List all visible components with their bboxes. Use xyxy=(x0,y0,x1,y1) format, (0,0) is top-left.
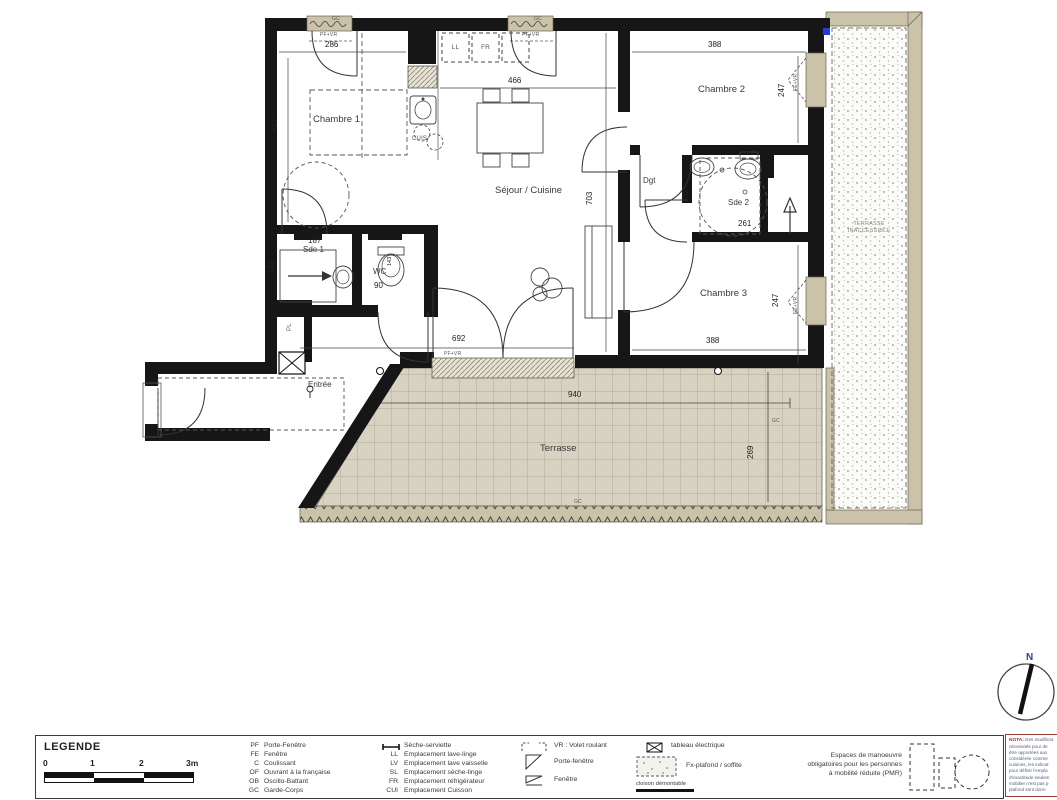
label-placard: PL xyxy=(287,323,293,331)
dim-chambre2-w: 388 xyxy=(708,40,721,49)
emp-lv-label: Emplacement lave vaisselle xyxy=(404,760,488,767)
abbr-ob-label: Oscillo-Battant xyxy=(264,778,308,785)
dim-sde1-h: 161 xyxy=(267,261,276,274)
pmr-spaces-icon xyxy=(908,742,993,794)
emp-ll: LL xyxy=(378,751,398,758)
emp-cui-label: Emplacement Cuisson xyxy=(404,787,472,794)
dim-chambre1-h: 414 xyxy=(270,119,279,132)
tag-fevr-1: FE+VR xyxy=(793,74,799,91)
dim-wc-h: 143 xyxy=(387,257,393,266)
symbol-fx-label: Fx-plafond / soffite xyxy=(686,762,742,769)
dim-terrasse-h: 269 xyxy=(746,446,755,459)
label-lave-linge: LL xyxy=(442,44,469,51)
label-terrasse-inaccessible-2: INACCESSIBLE xyxy=(832,228,906,234)
abbr-of-label: Ouvrant à la française xyxy=(264,769,331,776)
seche-serviette-icon xyxy=(381,743,401,751)
symbol-fe-label: Fenêtre xyxy=(554,776,577,783)
floor-plan-page: Chambre 1 Chambre 2 Chambre 3 Séjour / C… xyxy=(0,0,1057,800)
dim-wc-w: 90 xyxy=(374,281,383,290)
room-label-chambre1: Chambre 1 xyxy=(313,114,360,125)
scale-bar xyxy=(44,772,194,783)
dim-chambre3-h: 247 xyxy=(771,294,780,307)
room-label-sde1: Sde 1 xyxy=(303,245,324,254)
dim-sejour-h: 703 xyxy=(585,192,594,205)
nota-line: Des modificat xyxy=(1025,737,1053,742)
dim-sde2-w: 261 xyxy=(738,219,751,228)
dim-chambre3-w: 388 xyxy=(706,336,719,345)
room-label-sde2: Sde 2 xyxy=(728,198,749,207)
terrasse-inaccessible xyxy=(826,12,922,524)
fenetre-icon xyxy=(523,774,545,788)
emp-sl: SL xyxy=(378,769,398,776)
label-terrasse-inaccessible-1: TERRASSE xyxy=(832,221,906,227)
symbol-pf-label: Porte-fenêtre xyxy=(554,758,594,765)
abbr-gc-label: Garde-Corps xyxy=(264,787,303,794)
chambre1-fittings xyxy=(283,33,407,228)
tag-gc-1: GC xyxy=(332,16,340,22)
porte-fenetre-icon xyxy=(523,754,545,771)
pmr-text-2: obligatoires pour les personnes xyxy=(756,761,902,768)
floor-plan-drawing xyxy=(0,0,1057,560)
emp-lv: LV xyxy=(378,760,398,767)
scale-tick-1: 1 xyxy=(90,758,95,768)
legend-title: LEGENDE xyxy=(44,741,101,753)
emp-fr: FR xyxy=(378,778,398,785)
tag-gc-4: GC xyxy=(574,499,582,505)
room-label-dgt: Dgt xyxy=(643,176,655,185)
volet-roulant-icon xyxy=(521,741,547,752)
symbol-vr-label: VR : Volet roulant xyxy=(554,742,607,749)
room-label-terrasse: Terrasse xyxy=(540,443,576,454)
nota-box: NOTA: Des modificat nécessités pour de ê… xyxy=(1005,734,1057,797)
cloison-demontable-bar xyxy=(636,789,694,792)
room-label-entree: Entrée xyxy=(308,380,332,389)
emp-seche-label: Sèche-serviette xyxy=(404,742,451,749)
tag-fevr-2: FE+VR xyxy=(793,297,799,314)
legend-panel: LEGENDE 0 1 2 3m PF Porte-Fenêtre FE Fen… xyxy=(35,735,1004,799)
abbr-fe: FE xyxy=(239,751,259,758)
sde1-fixtures xyxy=(280,250,353,302)
abbr-c-label: Coulissant xyxy=(264,760,296,767)
label-refrigerateur: FR xyxy=(472,44,499,51)
emp-ll-label: Emplacement lave-linge xyxy=(404,751,477,758)
scale-tick-0: 0 xyxy=(43,758,48,768)
emp-cui: CUI xyxy=(378,787,398,794)
tag-gc-2: GC xyxy=(534,16,542,22)
emp-fr-label: Emplacement réfrigérateur xyxy=(404,778,484,785)
label-cuisson: CUIS xyxy=(412,136,427,142)
dim-terrasse-w: 940 xyxy=(568,390,581,399)
pmr-text-1: Espaces de manoeuvre xyxy=(756,752,902,759)
dim-chambre1-w: 286 xyxy=(325,40,338,49)
nota-title: NOTA: xyxy=(1009,738,1024,743)
symbol-cloison-label: cloison démontable xyxy=(636,781,686,787)
fx-plafond-icon xyxy=(636,756,678,778)
tableau-electrique-icon xyxy=(646,742,664,753)
tag-pfvr-1: PF+VR xyxy=(320,32,337,38)
room-label-sejour: Séjour / Cuisine xyxy=(495,185,562,196)
dim-sejour-w: 466 xyxy=(508,76,521,85)
tag-pfvr-3: PF+VR xyxy=(444,351,461,357)
abbr-c: C xyxy=(239,760,259,767)
pmr-text-3: à mobilité réduite (PMR) xyxy=(756,770,902,777)
dim-sde2-h: 189 xyxy=(681,190,690,203)
room-label-chambre2: Chambre 2 xyxy=(698,84,745,95)
abbr-fe-label: Fenêtre xyxy=(264,751,287,758)
compass-north-label: N xyxy=(1026,652,1033,663)
emp-sl-label: Emplacement sèche-linge xyxy=(404,769,482,776)
windows xyxy=(307,16,826,378)
scale-tick-2: 2 xyxy=(139,758,144,768)
room-label-wc: WC xyxy=(373,267,386,276)
symbol-tableau-label: tableau électrique xyxy=(671,742,725,749)
plan-marker-dot xyxy=(823,28,830,35)
tag-pfvr-2: PF+VR xyxy=(522,32,539,38)
dim-sde1-w: 187 xyxy=(308,236,321,245)
tag-gc-3: GC xyxy=(772,418,780,424)
abbr-pf-label: Porte-Fenêtre xyxy=(264,742,306,749)
compass xyxy=(986,642,1057,730)
abbr-gc: GC xyxy=(239,787,259,794)
abbr-ob: OB xyxy=(239,778,259,785)
dim-bay-w: 692 xyxy=(452,334,465,343)
abbr-of: OF xyxy=(239,769,259,776)
nota-line: plafond sont donn xyxy=(1009,787,1057,793)
abbr-pf: PF xyxy=(239,742,259,749)
room-label-chambre3: Chambre 3 xyxy=(700,288,747,299)
scale-tick-3: 3m xyxy=(186,758,198,768)
dim-chambre2-h: 247 xyxy=(777,84,786,97)
